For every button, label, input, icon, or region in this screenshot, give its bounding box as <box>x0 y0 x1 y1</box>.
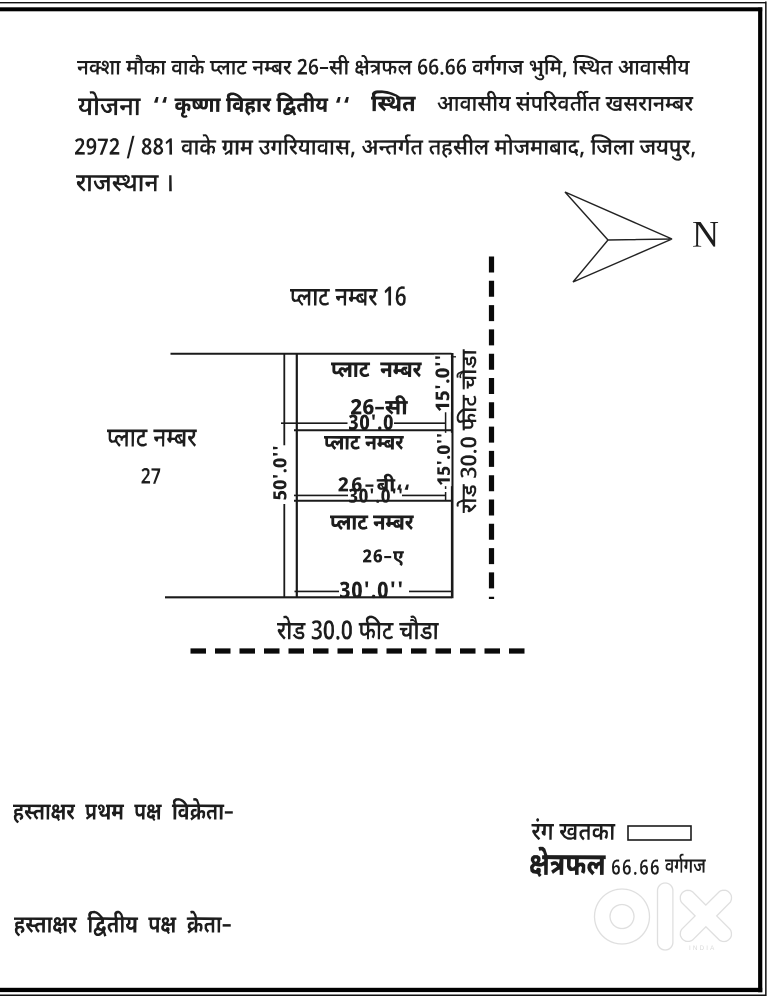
svg-text:INDIA: INDIA <box>689 945 717 952</box>
